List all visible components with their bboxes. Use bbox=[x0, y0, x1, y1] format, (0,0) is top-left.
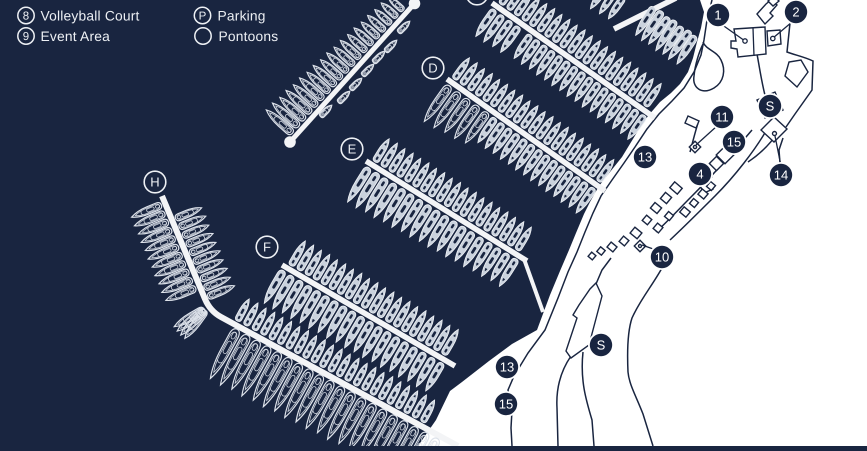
svg-text:11: 11 bbox=[715, 110, 729, 125]
svg-text:4: 4 bbox=[696, 167, 703, 182]
svg-text:9: 9 bbox=[23, 31, 29, 43]
svg-text:S: S bbox=[597, 338, 606, 353]
svg-text:15: 15 bbox=[499, 397, 513, 412]
svg-text:F: F bbox=[263, 240, 271, 255]
svg-text:8: 8 bbox=[23, 11, 29, 23]
svg-text:H: H bbox=[150, 175, 159, 190]
svg-text:14: 14 bbox=[774, 168, 788, 183]
svg-text:2: 2 bbox=[792, 5, 799, 20]
svg-text:Volleyball Court: Volleyball Court bbox=[41, 8, 140, 23]
svg-text:Event Area: Event Area bbox=[41, 29, 111, 44]
svg-text:Pontoons: Pontoons bbox=[219, 29, 279, 44]
svg-text:E: E bbox=[348, 142, 357, 157]
svg-text:15: 15 bbox=[727, 135, 741, 150]
svg-text:13: 13 bbox=[500, 360, 514, 375]
svg-text:10: 10 bbox=[655, 250, 669, 265]
svg-text:13: 13 bbox=[638, 150, 652, 165]
svg-text:S: S bbox=[766, 99, 775, 114]
svg-text:D: D bbox=[428, 61, 437, 76]
svg-text:C: C bbox=[472, 0, 481, 2]
svg-text:1: 1 bbox=[714, 8, 721, 23]
svg-text:P: P bbox=[199, 11, 207, 23]
svg-text:Parking: Parking bbox=[218, 8, 266, 23]
